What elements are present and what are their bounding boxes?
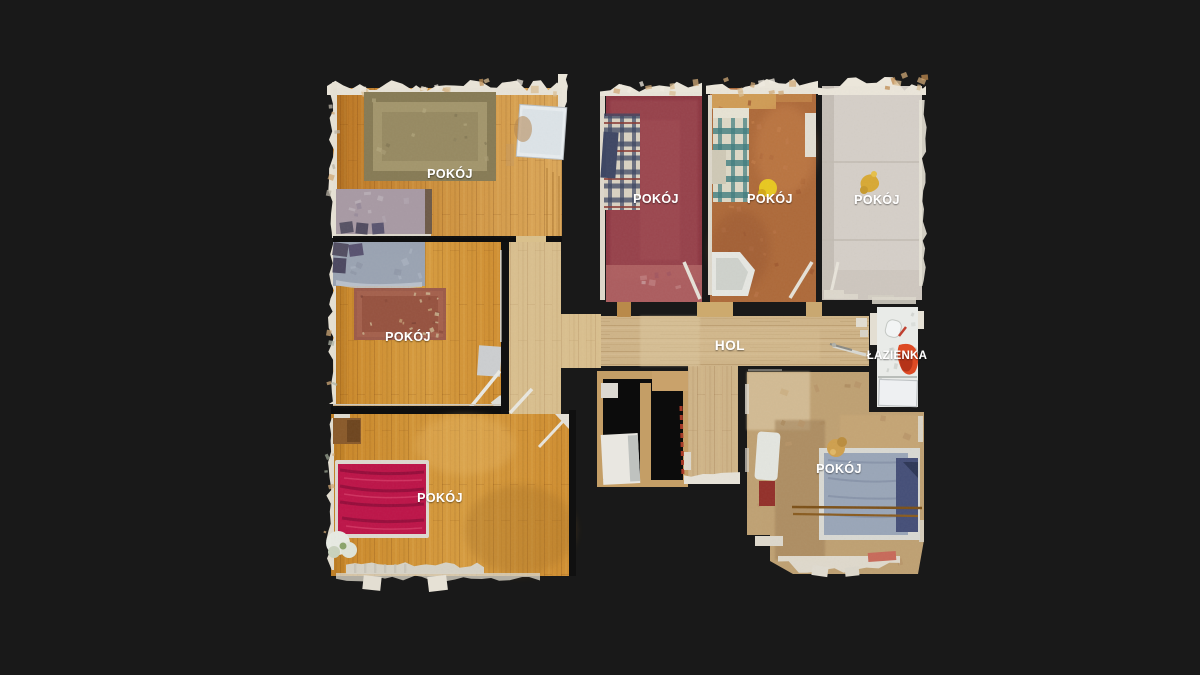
svg-text:HOL: HOL [715, 338, 745, 353]
svg-text:POKÓJ: POKÓJ [747, 191, 793, 206]
svg-text:ŁAZIENKA: ŁAZIENKA [867, 350, 928, 362]
svg-text:POKÓJ: POKÓJ [427, 166, 473, 181]
svg-text:POKÓJ: POKÓJ [854, 192, 900, 207]
svg-text:POKÓJ: POKÓJ [417, 490, 463, 505]
svg-text:POKÓJ: POKÓJ [385, 329, 431, 344]
svg-text:POKÓJ: POKÓJ [816, 461, 862, 476]
svg-text:POKÓJ: POKÓJ [633, 191, 679, 206]
